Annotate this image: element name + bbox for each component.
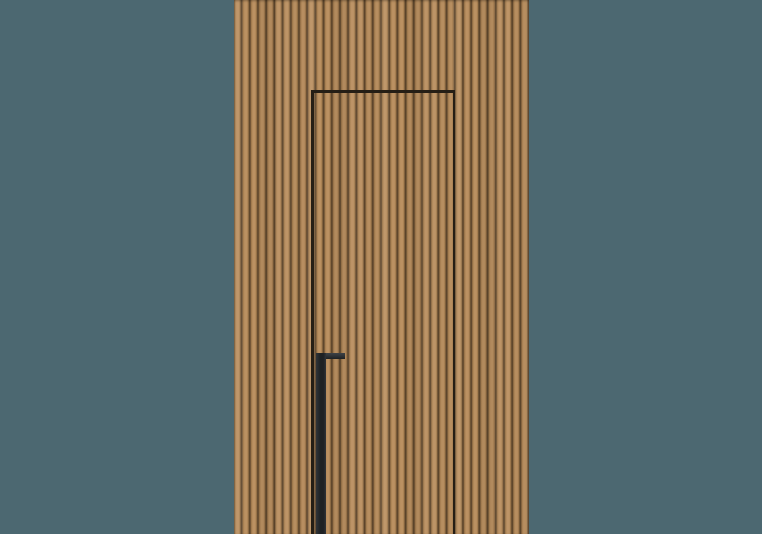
wood-slat-panel bbox=[234, 0, 529, 534]
door-seam-left bbox=[311, 90, 314, 534]
product-render-stage bbox=[0, 0, 762, 534]
door-handle-vertical-bar bbox=[316, 353, 326, 534]
door-seam-top bbox=[311, 90, 455, 93]
door-seam-right bbox=[453, 90, 456, 534]
